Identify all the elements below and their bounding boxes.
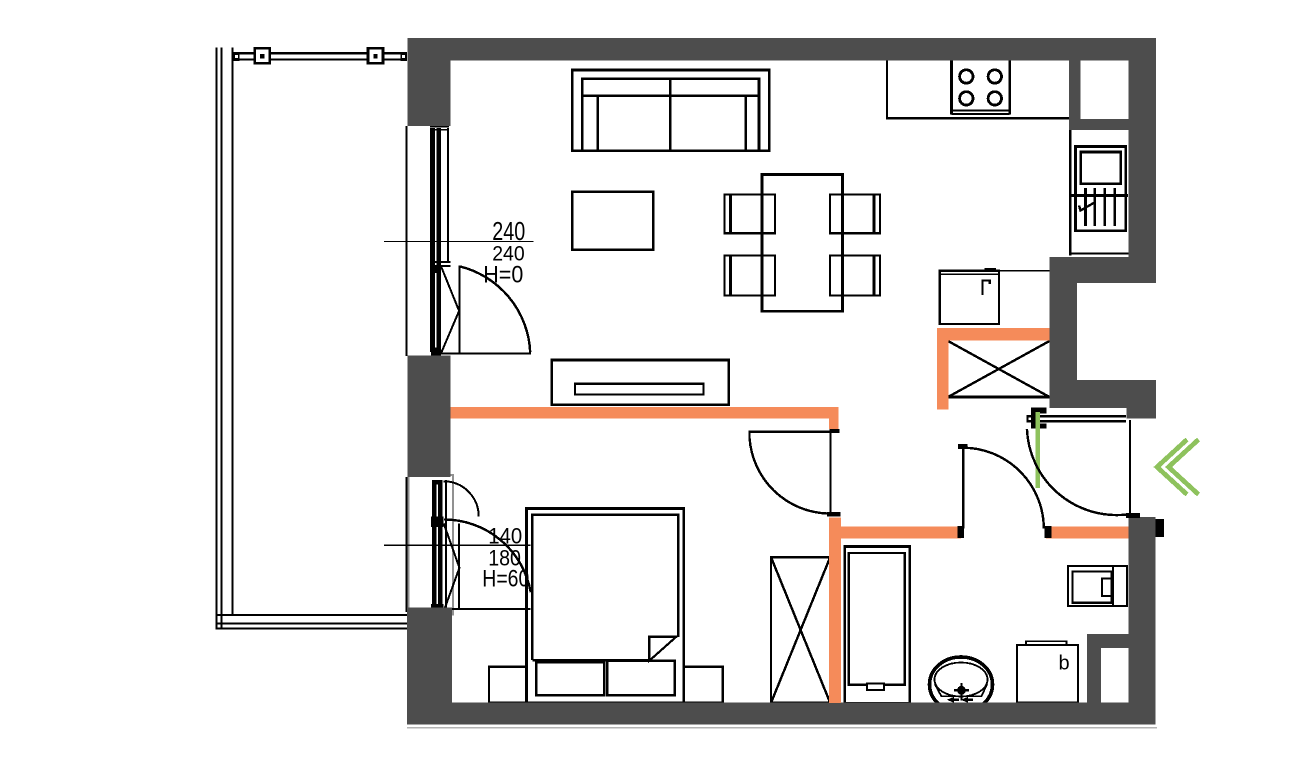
svg-text:H=60: H=60 <box>482 566 529 593</box>
svg-text:H=0: H=0 <box>483 262 523 289</box>
svg-text:b: b <box>1059 653 1070 675</box>
